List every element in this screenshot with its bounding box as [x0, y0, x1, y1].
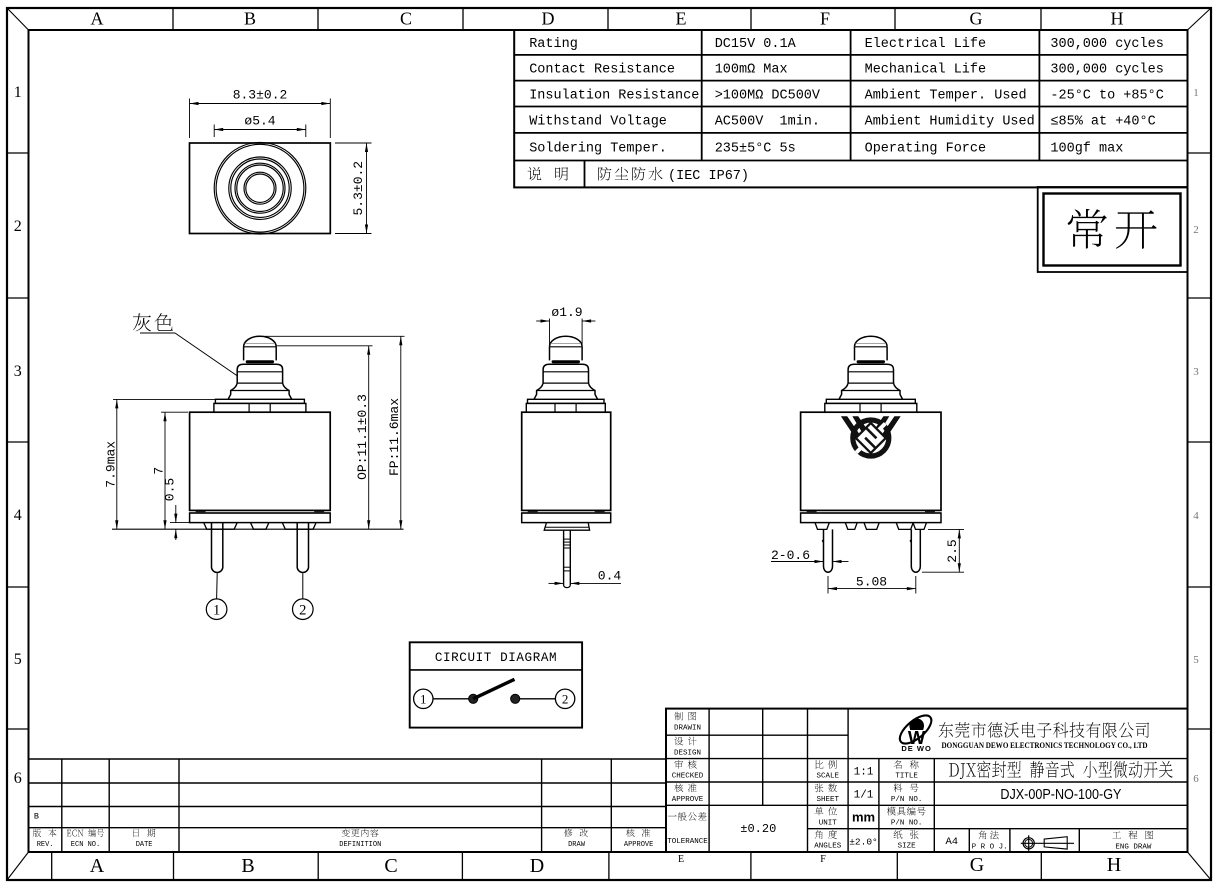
svg-text:ENG DRAW: ENG DRAW — [1115, 843, 1152, 851]
svg-text:DEFINITION: DEFINITION — [339, 841, 381, 849]
svg-text:Insulation Resistance: Insulation Resistance — [529, 88, 699, 103]
svg-text:Ambient Temper. Used: Ambient Temper. Used — [865, 88, 1027, 103]
svg-text:A: A — [91, 9, 104, 29]
svg-text:4: 4 — [1193, 510, 1199, 522]
svg-text:DE WO: DE WO — [901, 744, 931, 753]
svg-text:UNIT: UNIT — [819, 819, 838, 827]
svg-text:100gf max: 100gf max — [1050, 142, 1123, 157]
svg-text:B: B — [244, 9, 256, 29]
svg-text:2: 2 — [14, 218, 22, 235]
svg-text:Mechanical Life: Mechanical Life — [865, 63, 987, 78]
svg-text:OP:11.1±0.3: OP:11.1±0.3 — [355, 394, 370, 480]
svg-text:A4: A4 — [945, 836, 958, 848]
svg-text:300,000 cycles: 300,000 cycles — [1050, 63, 1163, 78]
svg-text:Rating: Rating — [529, 37, 578, 52]
svg-text:235±5°C 5s: 235±5°C 5s — [715, 142, 796, 157]
svg-text:SCALE: SCALE — [817, 773, 840, 781]
svg-text:7: 7 — [152, 467, 167, 475]
svg-text:P/N NO.: P/N NO. — [891, 819, 923, 827]
svg-text:E: E — [678, 854, 684, 865]
svg-text:2: 2 — [299, 602, 306, 618]
svg-text:8.3±0.2: 8.3±0.2 — [233, 88, 288, 103]
svg-text:ø5.4: ø5.4 — [244, 114, 275, 129]
svg-text:E: E — [676, 9, 687, 29]
svg-text:DATE: DATE — [136, 841, 153, 849]
svg-text:CHECKED: CHECKED — [672, 773, 704, 781]
svg-text:6: 6 — [1193, 773, 1199, 785]
svg-text:5.08: 5.08 — [856, 575, 887, 590]
svg-text:F: F — [820, 9, 830, 29]
svg-text:Withstand Voltage: Withstand Voltage — [529, 115, 667, 130]
svg-text:G: G — [970, 9, 983, 29]
svg-text:ECN NO.: ECN NO. — [71, 841, 100, 849]
svg-text:A: A — [90, 855, 105, 877]
svg-text:4: 4 — [14, 507, 22, 524]
svg-text:AC500V 1min.: AC500V 1min. — [715, 115, 820, 130]
svg-text:Electrical Life: Electrical Life — [865, 37, 987, 52]
svg-text:P R O J.: P R O J. — [972, 843, 1008, 851]
svg-text:2: 2 — [562, 692, 569, 707]
svg-text:REV.: REV. — [37, 841, 54, 849]
svg-text:0.4: 0.4 — [598, 569, 622, 584]
svg-text:ø1.9: ø1.9 — [551, 305, 582, 320]
svg-text:DONGGUAN DEWO ELECTRONICS TECH: DONGGUAN DEWO ELECTRONICS TECHNOLOGY CO.… — [942, 741, 1148, 750]
svg-text:≤85% at +40°C: ≤85% at +40°C — [1050, 115, 1155, 130]
svg-text:ANGLES: ANGLES — [814, 843, 842, 851]
svg-text:D: D — [530, 855, 544, 877]
svg-text:1: 1 — [420, 692, 427, 707]
svg-text:H: H — [1111, 9, 1124, 29]
svg-text:SHEET: SHEET — [817, 796, 840, 804]
svg-text:B: B — [34, 812, 39, 822]
svg-text:APPROVE: APPROVE — [672, 796, 704, 804]
svg-text:2: 2 — [1193, 224, 1199, 236]
svg-text:CIRCUIT DIAGRAM: CIRCUIT DIAGRAM — [435, 651, 557, 665]
svg-text:1/1: 1/1 — [854, 790, 874, 802]
svg-text:1: 1 — [213, 602, 220, 618]
svg-text:Soldering Temper.: Soldering Temper. — [529, 142, 667, 157]
svg-text:FP:11.6max: FP:11.6max — [387, 398, 402, 476]
svg-text:H: H — [1107, 854, 1121, 876]
svg-text:SIZE: SIZE — [898, 843, 917, 851]
svg-text:100mΩ Max: 100mΩ Max — [715, 63, 788, 78]
svg-text:±2.0°: ±2.0° — [849, 837, 878, 848]
svg-text:Operating Force: Operating Force — [865, 142, 987, 157]
svg-text:1:1: 1:1 — [854, 766, 874, 778]
svg-text:C: C — [400, 9, 412, 29]
svg-text:APPROVE: APPROVE — [624, 841, 653, 849]
svg-text:0.5: 0.5 — [163, 478, 178, 501]
svg-text:DJX-00P-NO-100-GY: DJX-00P-NO-100-GY — [1000, 787, 1121, 803]
svg-text:5: 5 — [1193, 654, 1199, 666]
svg-text:(IEC IP67): (IEC IP67) — [668, 169, 749, 184]
svg-text:TOLERANCE: TOLERANCE — [667, 838, 708, 846]
svg-text:G: G — [970, 854, 984, 876]
svg-text:F: F — [820, 854, 826, 865]
svg-text:P/N NO.: P/N NO. — [891, 796, 923, 804]
svg-text:DRAW: DRAW — [568, 841, 586, 849]
svg-text:>100MΩ DC500V: >100MΩ DC500V — [715, 88, 821, 103]
svg-text:5: 5 — [14, 651, 22, 668]
svg-text:300,000 cycles: 300,000 cycles — [1050, 37, 1163, 52]
svg-text:D: D — [542, 9, 555, 29]
svg-text:5.3±0.2: 5.3±0.2 — [351, 161, 366, 216]
svg-text:6: 6 — [14, 770, 22, 787]
svg-text:DRAWIN: DRAWIN — [674, 724, 701, 732]
svg-text:Contact Resistance: Contact Resistance — [529, 63, 675, 78]
svg-text:DESIGN: DESIGN — [674, 749, 701, 757]
svg-text:±0.20: ±0.20 — [740, 822, 776, 836]
svg-text:-25°C to +85°C: -25°C to +85°C — [1050, 88, 1163, 103]
svg-text:B: B — [241, 855, 254, 877]
svg-text:C: C — [384, 855, 397, 877]
svg-text:1: 1 — [1193, 87, 1199, 99]
svg-text:DC15V 0.1A: DC15V 0.1A — [715, 37, 797, 52]
svg-text:mm: mm — [852, 810, 875, 825]
svg-text:2.5: 2.5 — [945, 539, 960, 562]
svg-text:3: 3 — [14, 363, 22, 380]
svg-text:TITLE: TITLE — [895, 773, 918, 781]
svg-text:2-0.6: 2-0.6 — [771, 548, 810, 563]
svg-text:3: 3 — [1193, 366, 1199, 378]
svg-text:1: 1 — [14, 84, 22, 101]
svg-text:Ambient Humidity Used: Ambient Humidity Used — [865, 115, 1035, 130]
svg-text:7.9max: 7.9max — [104, 441, 119, 488]
